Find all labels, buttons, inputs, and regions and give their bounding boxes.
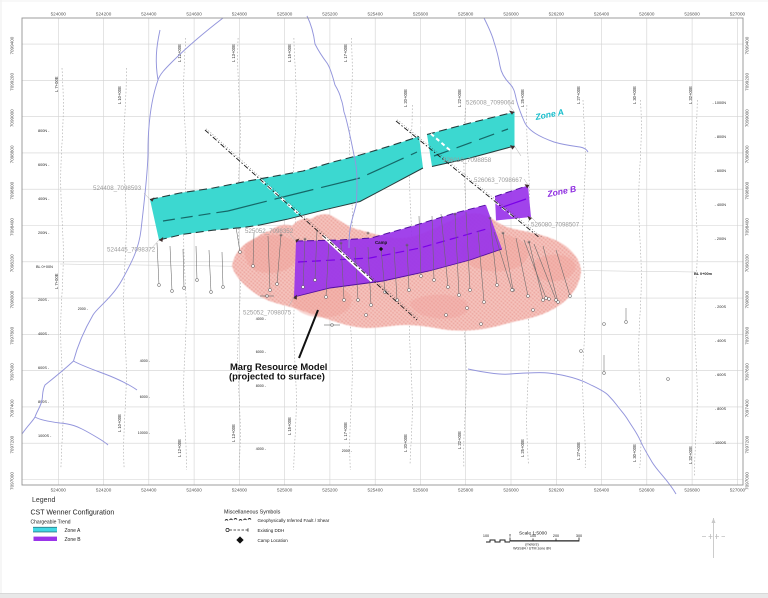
svg-text:600S -: 600S - xyxy=(38,366,50,370)
svg-text:7098800: 7098800 xyxy=(745,145,750,163)
svg-text:4000 -: 4000 - xyxy=(140,359,151,363)
svg-text:525052_7098352: 525052_7098352 xyxy=(245,228,294,235)
svg-text:7098200: 7098200 xyxy=(745,254,750,272)
svg-text:524000: 524000 xyxy=(51,12,67,17)
svg-text:525400: 525400 xyxy=(368,12,384,17)
svg-text:(projected to surface): (projected to surface) xyxy=(229,371,325,382)
svg-text:L 12+00E: L 12+00E xyxy=(177,439,182,457)
svg-text:525600: 525600 xyxy=(413,488,429,493)
svg-text:526008_7099064: 526008_7099064 xyxy=(466,100,515,107)
svg-text:Camp: Camp xyxy=(375,240,388,245)
svg-text:L 25+00E: L 25+00E xyxy=(520,439,525,457)
svg-text:7099200: 7099200 xyxy=(745,73,750,91)
svg-text:525800: 525800 xyxy=(458,12,474,17)
svg-text:L 27+00E: L 27+00E xyxy=(576,86,581,104)
svg-text:525000: 525000 xyxy=(277,488,293,493)
svg-text:7097000: 7097000 xyxy=(10,472,15,490)
svg-text:7099000: 7099000 xyxy=(745,109,750,127)
svg-text:7099400: 7099400 xyxy=(745,36,750,54)
svg-text:Zone B: Zone B xyxy=(65,537,82,543)
svg-text:7097000: 7097000 xyxy=(745,472,750,490)
svg-text:7097600: 7097600 xyxy=(10,363,15,381)
svg-text:7097800: 7097800 xyxy=(10,326,15,344)
svg-text:525400: 525400 xyxy=(368,488,384,493)
svg-text:0: 0 xyxy=(509,534,511,538)
svg-text:- 1000N: - 1000N xyxy=(712,101,726,105)
svg-text:Geophysically Inferred Fault /: Geophysically Inferred Fault / Shear xyxy=(258,518,330,523)
svg-text:10000 -: 10000 - xyxy=(138,431,151,435)
svg-text:L 7+00E: L 7+00E xyxy=(54,273,59,289)
svg-text:526000: 526000 xyxy=(503,12,519,17)
svg-text:- 400S: - 400S xyxy=(715,339,727,343)
svg-text:L 22+00E: L 22+00E xyxy=(457,89,462,107)
svg-text:7098600: 7098600 xyxy=(10,181,15,199)
svg-text:Miscellaneous Symbols: Miscellaneous Symbols xyxy=(224,510,281,516)
svg-text:7098400: 7098400 xyxy=(10,218,15,236)
svg-text:524400: 524400 xyxy=(141,488,157,493)
svg-text:7097400: 7097400 xyxy=(745,399,750,417)
svg-text:- 600N: - 600N xyxy=(715,169,727,173)
svg-text:Legend: Legend xyxy=(32,497,55,504)
svg-text:100: 100 xyxy=(483,534,489,538)
svg-text:524408_7098593: 524408_7098593 xyxy=(93,185,142,192)
svg-text:2000 -: 2000 - xyxy=(78,307,89,311)
svg-text:L 25+00E: L 25+00E xyxy=(520,89,525,107)
svg-text:CST Wenner Configuration: CST Wenner Configuration xyxy=(31,510,115,517)
svg-text:524600: 524600 xyxy=(186,488,202,493)
svg-text:L 10+00E: L 10+00E xyxy=(117,86,122,104)
svg-text:L 32+00E: L 32+00E xyxy=(688,446,693,464)
svg-text:L 27+00E: L 27+00E xyxy=(576,442,581,460)
svg-text:Zone A: Zone A xyxy=(65,528,82,534)
svg-text:L 17+00E: L 17+00E xyxy=(343,44,348,62)
svg-text:BL 0+00m: BL 0+00m xyxy=(694,272,713,276)
svg-text:525200: 525200 xyxy=(322,12,338,17)
svg-text:- 400N: - 400N xyxy=(715,203,727,207)
svg-text:L 15+00E: L 15+00E xyxy=(287,417,292,435)
svg-text:525800: 525800 xyxy=(458,488,474,493)
svg-text:7098000: 7098000 xyxy=(10,290,15,308)
svg-text:- 200N: - 200N xyxy=(715,237,727,241)
svg-text:200S -: 200S - xyxy=(38,298,50,302)
svg-text:400N -: 400N - xyxy=(38,197,50,201)
svg-text:7098000: 7098000 xyxy=(745,290,750,308)
svg-text:WGS84 / UTM zone 8N: WGS84 / UTM zone 8N xyxy=(513,546,551,550)
svg-text:BL 0+00N: BL 0+00N xyxy=(36,265,53,269)
svg-text:7097800: 7097800 xyxy=(745,326,750,344)
svg-text:526800: 526800 xyxy=(684,12,700,17)
svg-text:7097600: 7097600 xyxy=(745,363,750,381)
svg-text:7099400: 7099400 xyxy=(10,36,15,54)
svg-text:524200: 524200 xyxy=(96,488,112,493)
svg-text:L 20+00E: L 20+00E xyxy=(403,434,408,452)
svg-text:L 13+00E: L 13+00E xyxy=(231,44,236,62)
svg-text:Chargeable Trend: Chargeable Trend xyxy=(31,520,71,526)
svg-text:800S -: 800S - xyxy=(38,400,50,404)
svg-text:526063_7098667: 526063_7098667 xyxy=(474,177,523,184)
svg-text:7097200: 7097200 xyxy=(745,435,750,453)
svg-text:L 15+00E: L 15+00E xyxy=(287,44,292,62)
svg-text:7097400: 7097400 xyxy=(10,399,15,417)
svg-text:6000 -: 6000 - xyxy=(256,350,267,354)
svg-text:L 22+00E: L 22+00E xyxy=(457,431,462,449)
svg-text:7097200: 7097200 xyxy=(10,435,15,453)
svg-text:7098400: 7098400 xyxy=(745,218,750,236)
svg-text:L 32+00E: L 32+00E xyxy=(688,86,693,104)
svg-text:7098800: 7098800 xyxy=(10,145,15,163)
svg-text:526000: 526000 xyxy=(503,488,519,493)
svg-text:526400: 526400 xyxy=(594,12,610,17)
svg-text:525200: 525200 xyxy=(322,488,338,493)
svg-text:7099200: 7099200 xyxy=(10,73,15,91)
svg-text:526400: 526400 xyxy=(594,488,610,493)
svg-text:- 600S: - 600S xyxy=(715,373,727,377)
svg-text:300: 300 xyxy=(576,534,582,538)
svg-text:526200: 526200 xyxy=(549,488,565,493)
svg-text:- 200S: - 200S xyxy=(715,305,727,309)
svg-text:400S -: 400S - xyxy=(38,332,50,336)
svg-text:526600: 526600 xyxy=(639,488,655,493)
svg-text:526010_7098858: 526010_7098858 xyxy=(443,157,492,164)
svg-text:7099000: 7099000 xyxy=(10,109,15,127)
svg-text:L 13+00E: L 13+00E xyxy=(231,424,236,442)
svg-text:527000: 527000 xyxy=(730,12,746,17)
svg-text:800N -: 800N - xyxy=(38,129,50,133)
svg-text:526200: 526200 xyxy=(549,12,565,17)
svg-text:- 800N: - 800N xyxy=(715,135,727,139)
svg-text:L 30+00E: L 30+00E xyxy=(632,444,637,462)
svg-text:525052_7098075: 525052_7098075 xyxy=(243,310,292,317)
svg-text:524600: 524600 xyxy=(186,12,202,17)
svg-text:200: 200 xyxy=(553,534,559,538)
svg-text:L 17+00E: L 17+00E xyxy=(343,422,348,440)
svg-text:526800: 526800 xyxy=(684,488,700,493)
svg-text:524200: 524200 xyxy=(96,12,112,17)
svg-text:L 20+00E: L 20+00E xyxy=(403,89,408,107)
svg-text:100: 100 xyxy=(530,534,536,538)
svg-text:2000 -: 2000 - xyxy=(342,449,353,453)
svg-text:8000 -: 8000 - xyxy=(256,384,267,388)
svg-text:527000: 527000 xyxy=(730,488,746,493)
svg-text:524000: 524000 xyxy=(51,488,67,493)
svg-text:L 7+00E: L 7+00E xyxy=(54,76,59,92)
svg-text:L 30+00E: L 30+00E xyxy=(632,86,637,104)
svg-text:- 800S: - 800S xyxy=(715,407,727,411)
svg-text:1000S -: 1000S - xyxy=(38,434,52,438)
svg-text:525000: 525000 xyxy=(277,12,293,17)
svg-text:7098600: 7098600 xyxy=(745,181,750,199)
svg-text:526600: 526600 xyxy=(639,12,655,17)
svg-text:7098200: 7098200 xyxy=(10,254,15,272)
svg-text:L 10+00E: L 10+00E xyxy=(117,414,122,432)
svg-text:524800: 524800 xyxy=(232,12,248,17)
svg-text:- 1000S: - 1000S xyxy=(713,441,727,445)
svg-text:Existing DDH: Existing DDH xyxy=(258,528,285,533)
svg-text:200N -: 200N - xyxy=(38,231,50,235)
svg-text:4000 -: 4000 - xyxy=(256,317,267,321)
svg-text:524800: 524800 xyxy=(232,488,248,493)
svg-text:6000 -: 6000 - xyxy=(140,395,151,399)
svg-text:600N -: 600N - xyxy=(38,163,50,167)
svg-text:526080_7098507: 526080_7098507 xyxy=(531,222,580,229)
svg-text:Camp Location: Camp Location xyxy=(258,538,289,543)
svg-text:4000 -: 4000 - xyxy=(256,447,267,451)
svg-text:525600: 525600 xyxy=(413,12,429,17)
svg-text:524400: 524400 xyxy=(141,12,157,17)
svg-text:524445_7098372: 524445_7098372 xyxy=(107,247,156,254)
